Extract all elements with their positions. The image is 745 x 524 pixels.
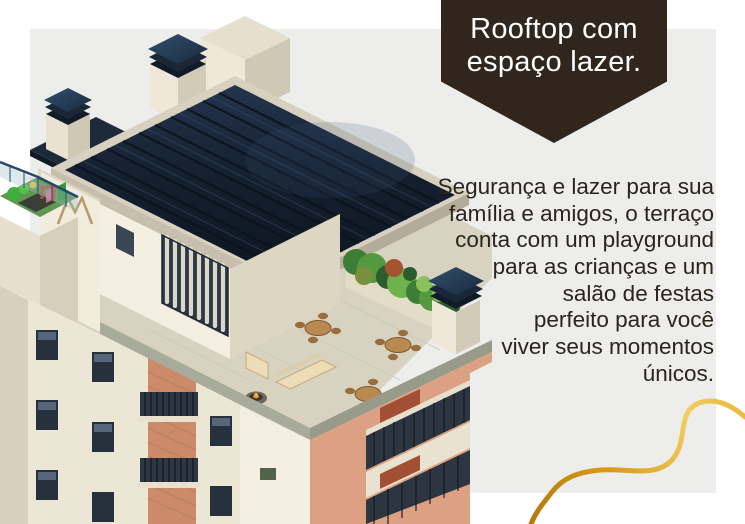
brick-accent-strip [148, 358, 196, 524]
page-background: Rooftop com espaço lazer. Segurança e la… [0, 0, 745, 524]
chimney-icon [44, 88, 92, 160]
balcony [138, 458, 200, 488]
balcony [138, 392, 200, 422]
gold-curve-decoration [495, 394, 745, 524]
description-text: Segurança e lazer para sua família e ami… [399, 174, 714, 387]
